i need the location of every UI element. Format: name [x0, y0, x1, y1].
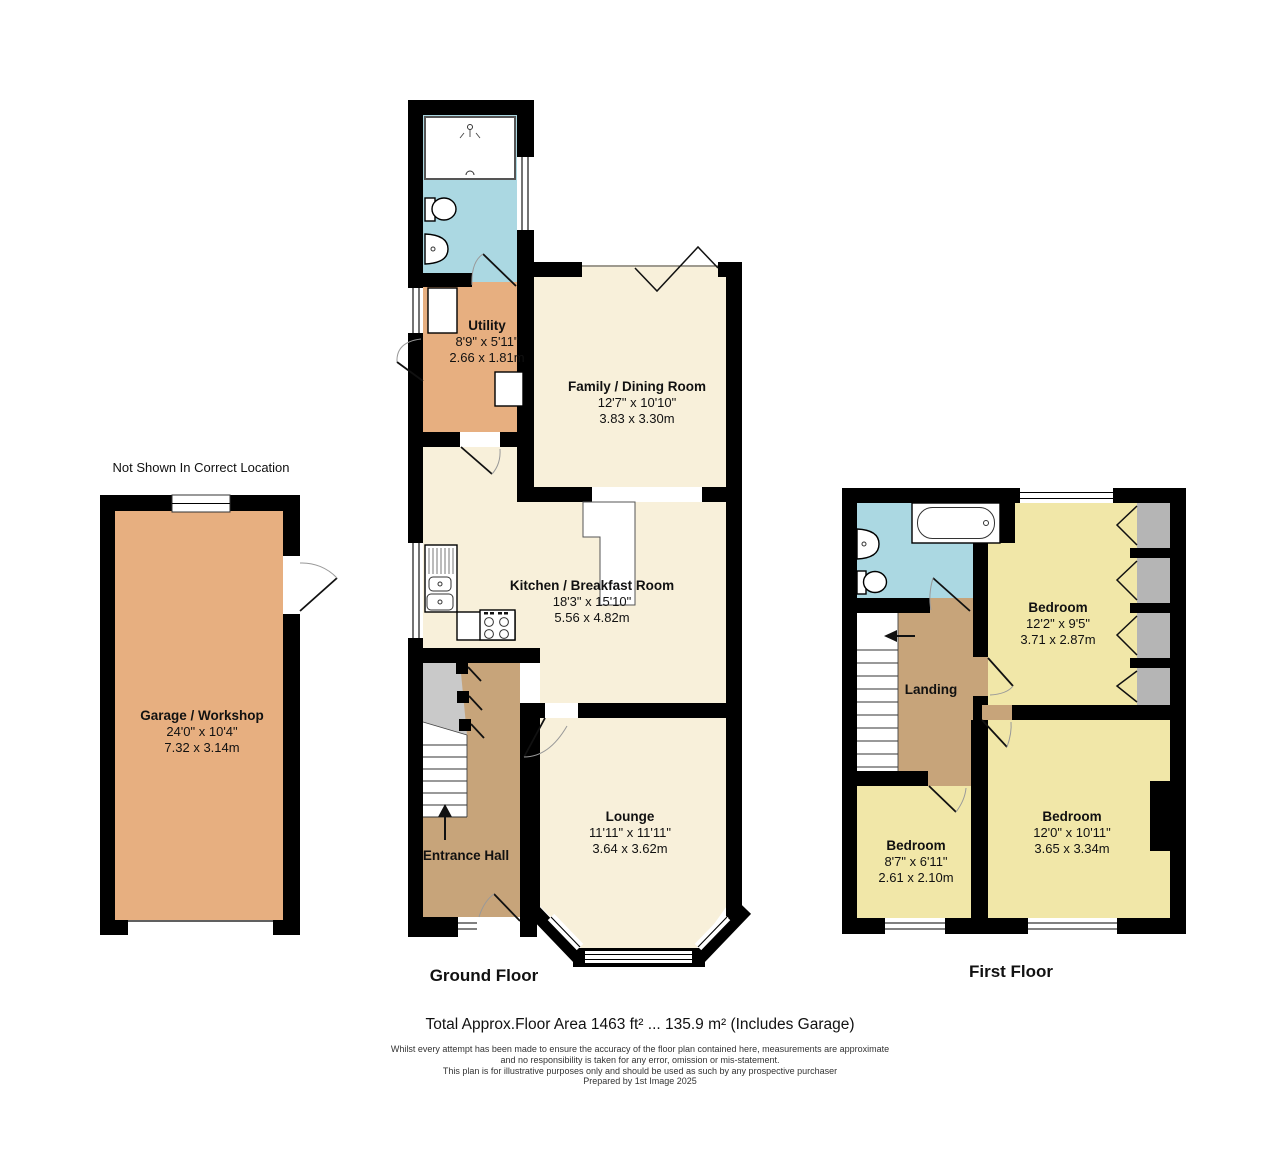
- garage-plan: [90, 455, 360, 945]
- kitchen-sink-icon: [425, 545, 457, 612]
- kitchen-window-icon: [408, 543, 423, 638]
- room-label-hall: Entrance Hall: [411, 848, 521, 864]
- bath-icon: [912, 503, 1000, 543]
- room-label-bedroom1: Bedroom 12'2" x 9'5" 3.71 x 2.87m: [1020, 600, 1095, 648]
- garage-side-door-icon: [283, 556, 337, 614]
- room-label-garage: Garage / Workshop 24'0" x 10'4" 7.32 x 3…: [140, 708, 264, 756]
- first-floor-title: First Floor: [969, 962, 1053, 982]
- garage-window-icon: [172, 495, 230, 512]
- bedroom3-window-icon: [885, 918, 945, 934]
- room-label-bedroom3: Bedroom 8'7" x 6'11" 2.61 x 2.10m: [878, 838, 953, 886]
- room-label-kitchen: Kitchen / Breakfast Room 18'3" x 15'10" …: [510, 578, 674, 626]
- shower-room-window-icon: [517, 157, 534, 230]
- room-label-lounge: Lounge 11'11" x 11'11" 3.64 x 3.62m: [589, 809, 671, 857]
- room-label-bedroom2: Bedroom 12'0" x 10'11" 3.65 x 3.34m: [1033, 809, 1111, 857]
- garage-location-note: Not Shown In Correct Location: [112, 460, 289, 475]
- toilet-icon: [425, 198, 456, 221]
- toilet-icon-ff: [857, 571, 887, 594]
- total-area-text: Total Approx.Floor Area 1463 ft² ... 135…: [0, 1016, 1280, 1034]
- hall-window-icon: [458, 917, 477, 937]
- disclaimer-text: Whilst every attempt has been made to en…: [0, 1044, 1280, 1087]
- floorplan-canvas: Not Shown In Correct Location Garage / W…: [0, 0, 1280, 1165]
- utility-window-icon: [408, 288, 423, 333]
- bedroom2-window-icon: [1028, 918, 1117, 934]
- ground-floor-title: Ground Floor: [430, 966, 539, 986]
- room-label-landing: Landing: [905, 682, 958, 698]
- shower-icon: [425, 117, 515, 179]
- room-label-utility: Utility 8'9" x 5'11" 2.66 x 1.81m: [449, 318, 524, 366]
- garage-door-opening: [128, 920, 273, 937]
- room-label-family: Family / Dining Room 12'7" x 10'10" 3.83…: [568, 379, 706, 427]
- utility-counter: [495, 372, 523, 406]
- family-room-floor: [534, 265, 726, 487]
- bedroom1-window-icon: [1020, 488, 1113, 503]
- chimney-breast: [1150, 781, 1170, 851]
